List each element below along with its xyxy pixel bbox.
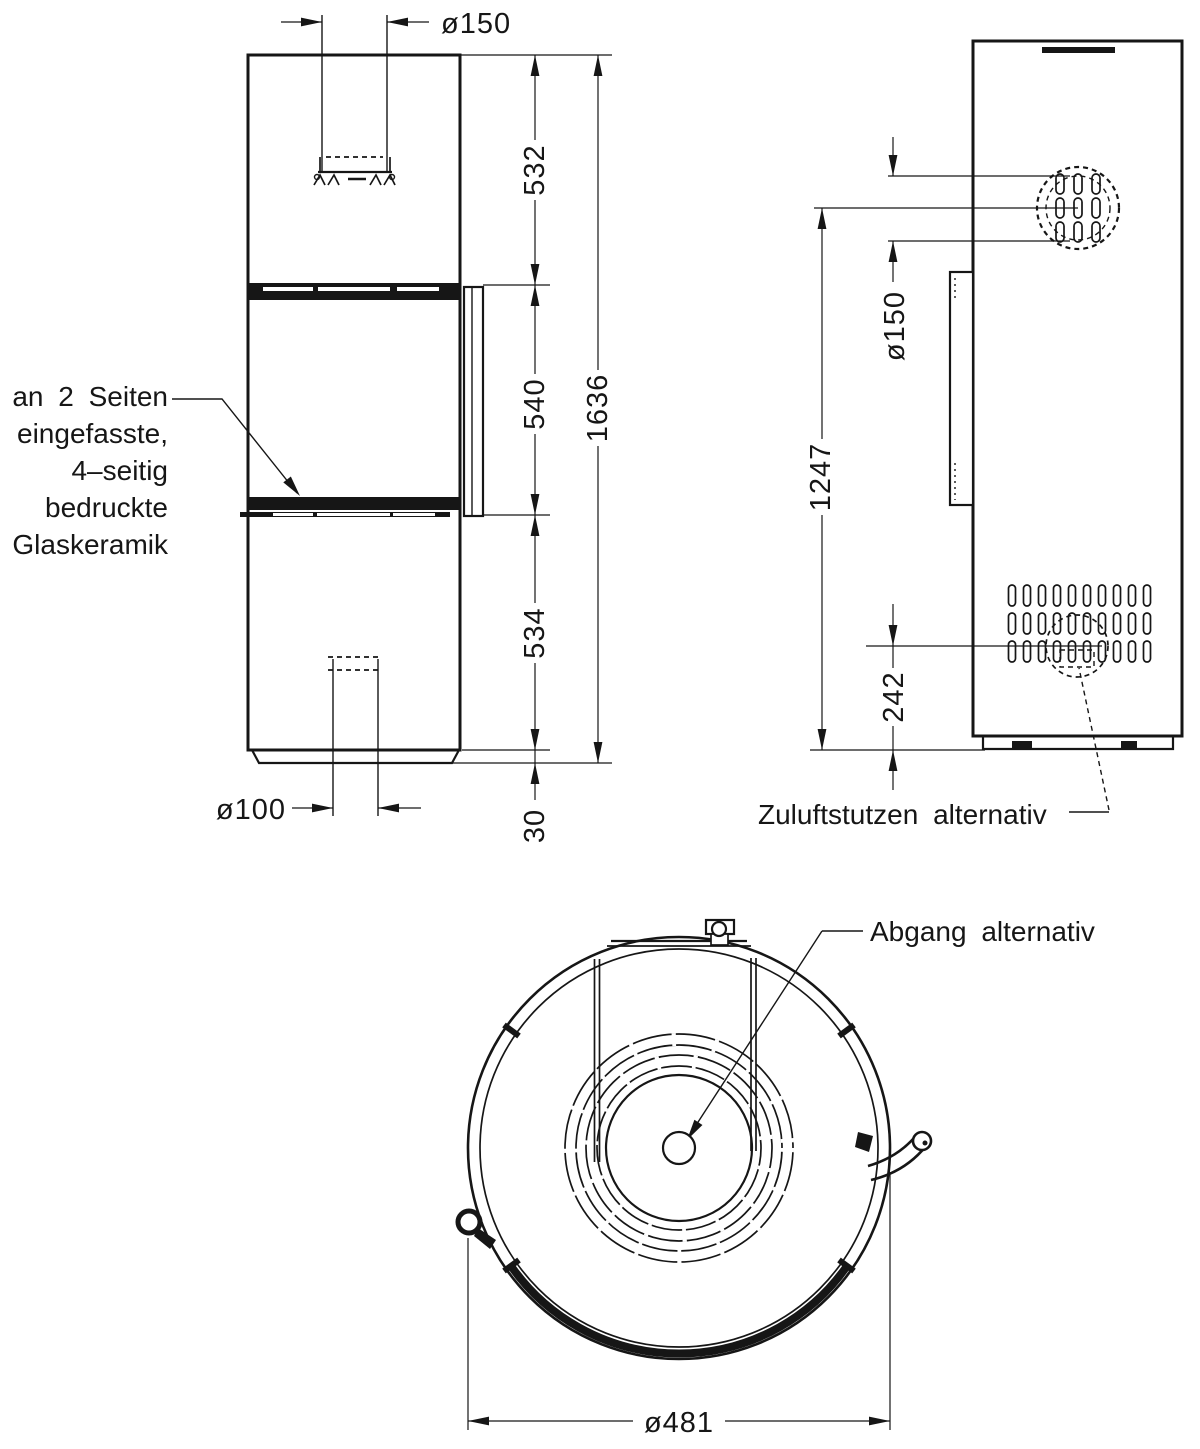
side-view: ø150 1247 242 Zuluftstutzen alternativ bbox=[758, 41, 1182, 830]
side-base-plinth bbox=[983, 736, 1173, 749]
air-inlet-note: Zuluftstutzen alternativ bbox=[758, 799, 1047, 830]
dim-lower-section-label: 534 bbox=[519, 607, 551, 658]
glass-note-line-5: Glaskeramik bbox=[12, 529, 169, 560]
flue-pipe bbox=[314, 15, 395, 185]
top-rim-thick-arc bbox=[511, 1266, 847, 1354]
dim-window-height-label: 540 bbox=[519, 378, 551, 429]
alt-outlet-circle bbox=[663, 1132, 695, 1164]
stove-dimension-drawing: 532 540 534 30 1636 ø150 ø100 an 2 Seite… bbox=[0, 0, 1200, 1449]
window-bottom-frame bbox=[248, 497, 460, 510]
dim-flue-diameter-label: ø150 bbox=[441, 8, 511, 40]
front-body-outline bbox=[248, 55, 460, 750]
glass-note-line-2: eingefasste, bbox=[17, 418, 168, 449]
dim-total-height: 1636 bbox=[582, 370, 614, 446]
window-top-frame bbox=[248, 283, 460, 300]
dim-inlet-center-height: 242 bbox=[878, 668, 910, 726]
dim-upper-section: 532 bbox=[519, 140, 551, 200]
glass-note-leader bbox=[172, 399, 297, 493]
flue-flange-hatch bbox=[314, 175, 395, 186]
air-inlet-pipe bbox=[328, 657, 382, 816]
dim-side-flue-diameter: ø150 bbox=[879, 286, 911, 366]
hinge-eyelet bbox=[458, 1211, 496, 1249]
dim-flue-center-height-label: 1247 bbox=[805, 443, 837, 512]
side-glass-edge bbox=[464, 287, 483, 516]
firebox-window bbox=[240, 283, 483, 517]
door-handle bbox=[855, 1132, 931, 1180]
dim-inlet-diameter-label: ø100 bbox=[216, 794, 286, 826]
glass-note-line-1: an 2 Seiten bbox=[12, 381, 168, 412]
front-base-plinth bbox=[252, 750, 459, 763]
dim-window-height: 540 bbox=[519, 374, 551, 434]
dim-total-height-label: 1636 bbox=[582, 374, 614, 443]
dim-outer-diameter-label: ø481 bbox=[644, 1407, 714, 1439]
dim-upper-section-label: 532 bbox=[519, 144, 551, 195]
dim-inlet-center-height-label: 242 bbox=[878, 671, 910, 722]
dim-outer-diameter: ø481 bbox=[633, 1405, 725, 1439]
outlet-note: Abgang alternativ bbox=[870, 916, 1095, 947]
glass-note-line-4: bedruckte bbox=[45, 492, 168, 523]
dim-flue-center-height: 1247 bbox=[805, 439, 837, 515]
dim-side-flue-diameter-label: ø150 bbox=[879, 291, 911, 361]
front-view: 532 540 534 30 1636 ø150 ø100 an 2 Seite… bbox=[12, 8, 614, 848]
top-view: Abgang alternativ ø481 bbox=[458, 916, 1095, 1439]
dim-base-height: 30 bbox=[519, 804, 551, 848]
glass-note: an 2 Seiten eingefasste, 4–seitig bedruc… bbox=[12, 381, 303, 560]
technical-drawing-page: 532 540 534 30 1636 ø150 ø100 an 2 Seite… bbox=[0, 0, 1200, 1449]
top-slot bbox=[1042, 47, 1115, 53]
air-vent-grille bbox=[1009, 585, 1151, 677]
glass-note-line-3: 4–seitig bbox=[71, 455, 168, 486]
dim-base-height-label: 30 bbox=[519, 809, 551, 843]
dim-lower-section: 534 bbox=[519, 603, 551, 663]
side-glass-protrusion bbox=[950, 272, 973, 505]
